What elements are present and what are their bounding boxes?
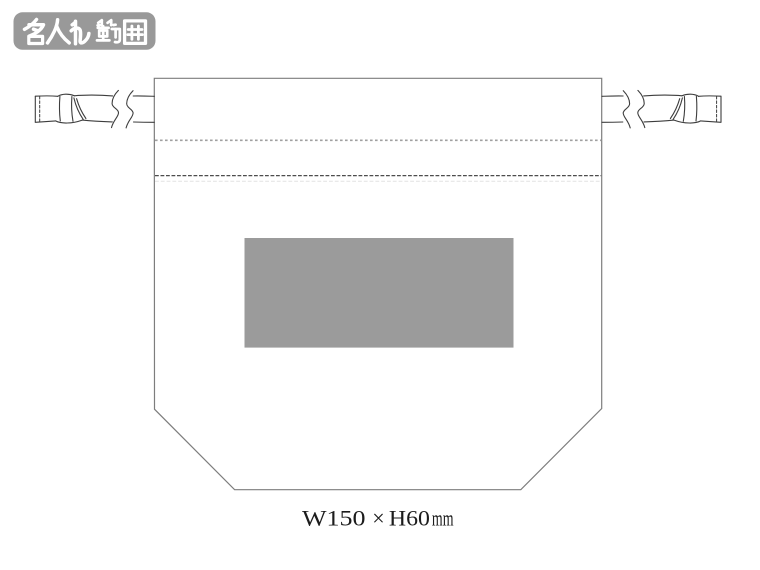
svg-text:×: × bbox=[372, 506, 384, 531]
svg-text:H60: H60 bbox=[389, 506, 430, 531]
svg-text:mm: mm bbox=[432, 506, 454, 531]
svg-text:W150: W150 bbox=[302, 506, 366, 531]
